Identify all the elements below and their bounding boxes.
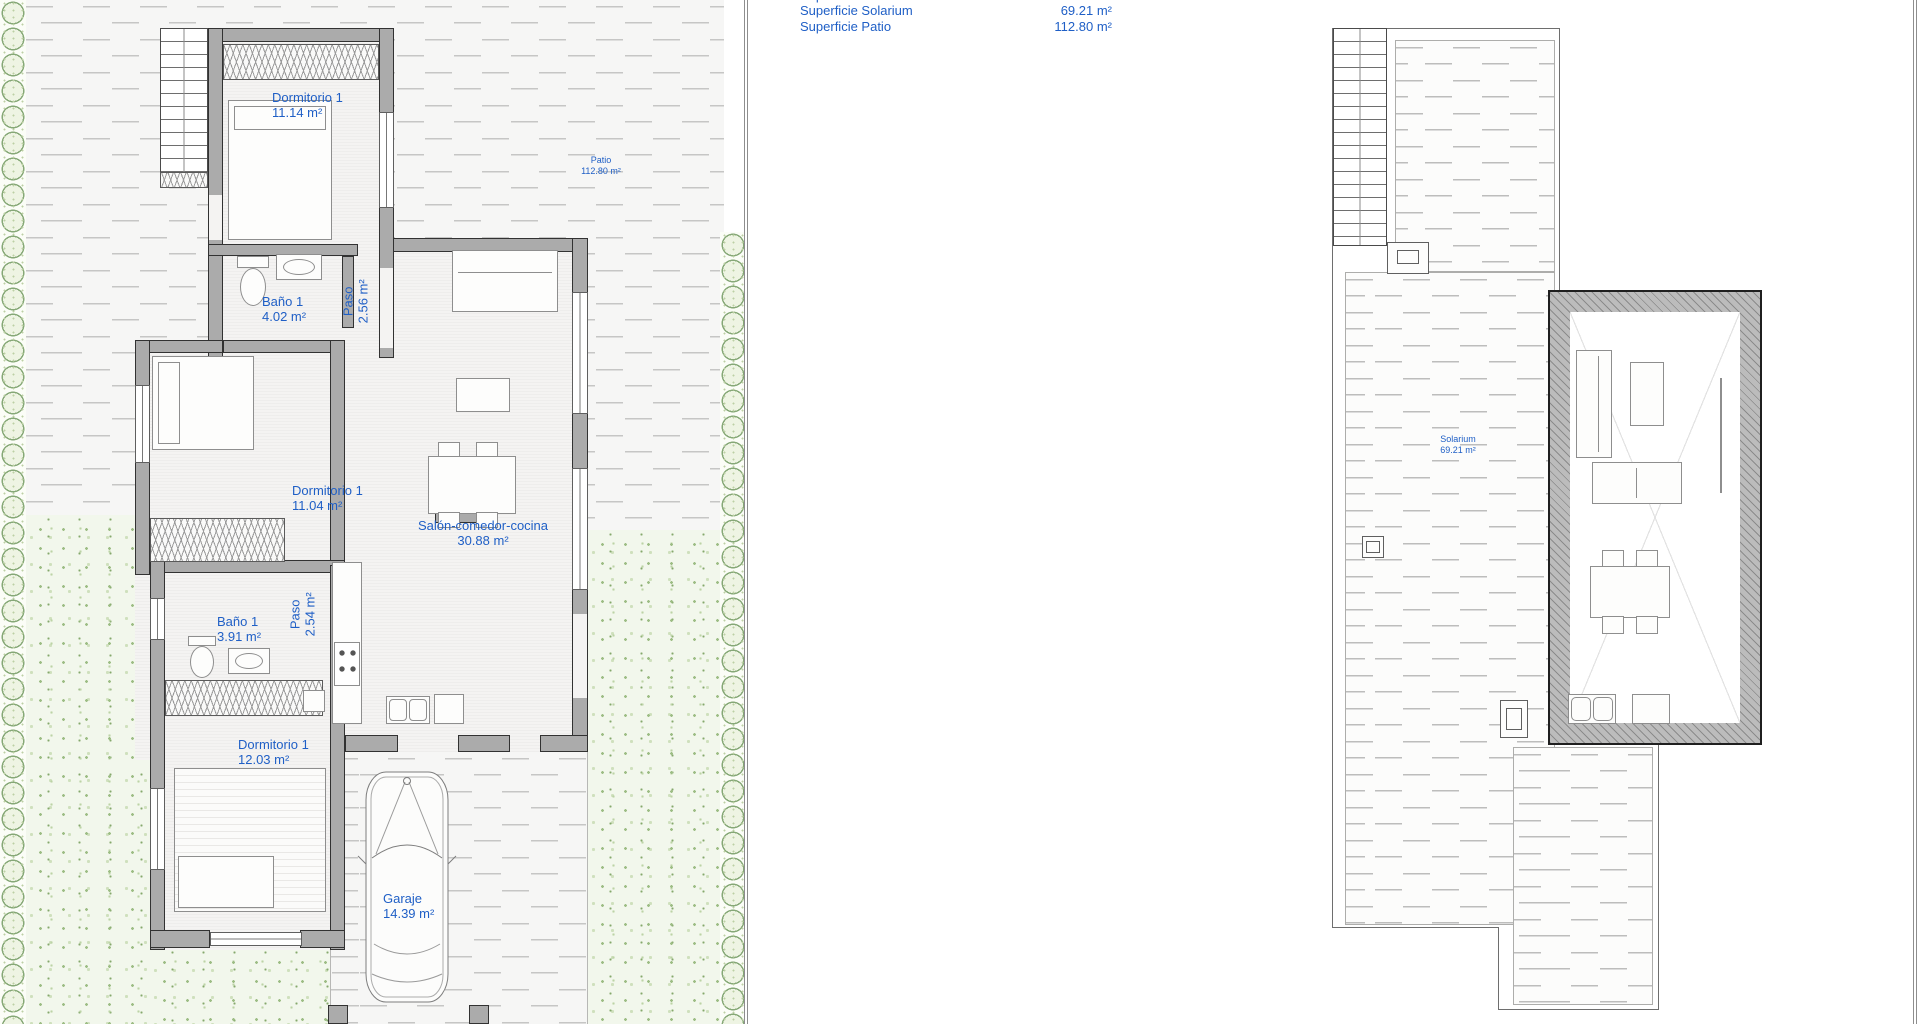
roof-boundary [1658, 745, 1659, 1010]
side-table [1630, 362, 1664, 426]
legend-row-patio: Superficie Patio 112.80 m² [800, 19, 1112, 35]
room-area: 2.56 m² [356, 261, 371, 341]
sofa [1592, 462, 1682, 504]
wall [300, 930, 345, 948]
door-opening [209, 195, 222, 240]
room-area: 112.80 m² [558, 166, 644, 177]
roof-boundary [1498, 927, 1499, 1010]
wardrobe [165, 680, 323, 716]
room-area: 11.14 m² [272, 105, 343, 120]
washing-machine [303, 690, 325, 712]
dining-chair [1602, 616, 1624, 634]
sink-bowl [1593, 697, 1613, 721]
room-label-garaje: Garaje 14.39 m² [383, 891, 434, 922]
window [379, 112, 394, 208]
room-label-paso-low: Paso 2.54 m² [288, 574, 319, 654]
wall [345, 735, 398, 752]
washbasin-bowl [283, 259, 315, 275]
plot-boundary-line-left [744, 0, 748, 1024]
room-name: Garaje [383, 891, 434, 906]
bed-pillow [158, 362, 180, 444]
room-label-dormitorio-low: Dormitorio 1 12.03 m² [238, 737, 309, 768]
room-area: 69.21 m² [1414, 445, 1502, 456]
sofa [452, 250, 558, 312]
door-opening [380, 268, 393, 348]
room-area: 4.02 m² [262, 309, 306, 324]
carport-pillar [328, 1005, 348, 1024]
room-label-dormitorio-top: Dormitorio 1 11.14 m² [272, 90, 343, 121]
floor-plan-sheet: Dormitorio 1 11.14 m² Baño 1 4.02 m² Pas… [0, 0, 1920, 1024]
garden-grass-left [26, 515, 150, 1024]
wall [223, 340, 345, 353]
stairs-base-wall [160, 172, 208, 188]
room-name: Baño 1 [262, 294, 306, 309]
door-opening [573, 614, 587, 698]
wall [208, 28, 223, 358]
room-label-paso-top: Paso 2.56 m² [341, 261, 372, 341]
window [572, 468, 588, 590]
room-label-solarium: Solarium 69.21 m² [1414, 434, 1502, 456]
sink-bowl [389, 699, 407, 721]
roof-ac-unit-inner [1366, 541, 1380, 553]
window [150, 598, 165, 640]
room-name: Solarium [1414, 434, 1502, 445]
roof-boundary [1332, 927, 1499, 928]
hedge-row-right [720, 232, 744, 1024]
room-name: Paso [341, 261, 356, 341]
roof-skylight-inner [1397, 250, 1419, 264]
stove [334, 642, 360, 686]
sink-bowl [1571, 697, 1591, 721]
room-area: 14.39 m² [383, 906, 434, 921]
tv-bench-line [1720, 378, 1722, 493]
window [572, 292, 588, 414]
room-label-bano-low: Baño 1 3.91 m² [217, 614, 261, 645]
room-label-dormitorio-mid: Dormitorio 1 11.04 m² [292, 483, 363, 514]
roof-boundary [1559, 28, 1560, 292]
legend-row-clipped: Superficie m² [800, 0, 1112, 2]
exterior-stairs [160, 28, 208, 174]
wardrobe [150, 518, 285, 562]
roof-stairs [1333, 28, 1387, 246]
legend-label: Superficie Patio [800, 19, 891, 35]
legend-row-solarium: Superficie Solarium 69.21 m² [800, 3, 1112, 19]
roof-boundary [1498, 1009, 1659, 1010]
wall [208, 28, 394, 42]
toilet-bowl [190, 646, 214, 678]
room-name: Paso [288, 574, 303, 654]
room-area: 30.88 m² [398, 533, 568, 548]
room-name: Patio [558, 155, 644, 166]
carport-pillar [469, 1005, 489, 1024]
plot-boundary-line-right [1913, 0, 1917, 1024]
kitchen-appliance [434, 694, 464, 724]
room-label-patio: Patio 112.80 m² [558, 155, 644, 177]
sofa-seat-line [1636, 468, 1637, 498]
sofa-seat-line [458, 272, 552, 273]
room-name: Dormitorio 1 [272, 90, 343, 105]
wall [540, 735, 588, 752]
legend-label: Superficie Solarium [800, 3, 913, 19]
room-area: 11.04 m² [292, 498, 363, 513]
toilet-tank [188, 636, 216, 646]
room-name: Salón-comedor-cocina [398, 518, 568, 533]
bed-cover [178, 856, 274, 908]
solarium-deck-lower [1513, 747, 1653, 1005]
room-label-bano-top: Baño 1 4.02 m² [262, 294, 306, 325]
dining-chair [1636, 616, 1658, 634]
wardrobe [223, 44, 379, 80]
window [210, 932, 302, 946]
kitchen-appliance [1632, 694, 1670, 724]
dining-table [428, 456, 516, 514]
sink-bowl [409, 699, 427, 721]
garden-grass-right [588, 530, 722, 1024]
window [135, 385, 150, 463]
hedge-row-left [0, 0, 26, 1024]
room-label-salon: Salón-comedor-cocina 30.88 m² [398, 518, 568, 549]
window [150, 788, 165, 870]
solarium-deck-top [1395, 40, 1555, 272]
room-area: 2.54 m² [303, 574, 318, 654]
room-name: Baño 1 [217, 614, 261, 629]
toilet-tank [237, 256, 269, 268]
room-name: Dormitorio 1 [238, 737, 309, 752]
room-area: 12.03 m² [238, 752, 309, 767]
sofa-seat-line [1598, 356, 1599, 452]
dining-table [1590, 566, 1670, 618]
washbasin-bowl [235, 653, 263, 669]
roof-access-door-inner [1506, 708, 1522, 730]
room-area: 3.91 m² [217, 629, 261, 644]
room-name: Dormitorio 1 [292, 483, 363, 498]
legend-value: 69.21 m² [955, 3, 1112, 19]
sofa [1576, 350, 1612, 458]
wall [330, 340, 345, 565]
wall [150, 930, 210, 948]
wall [458, 735, 510, 752]
car-top-view [356, 766, 458, 1008]
legend-value: 112.80 m² [955, 19, 1112, 35]
coffee-table [456, 378, 510, 412]
garden-grass-bottom [150, 948, 330, 1024]
